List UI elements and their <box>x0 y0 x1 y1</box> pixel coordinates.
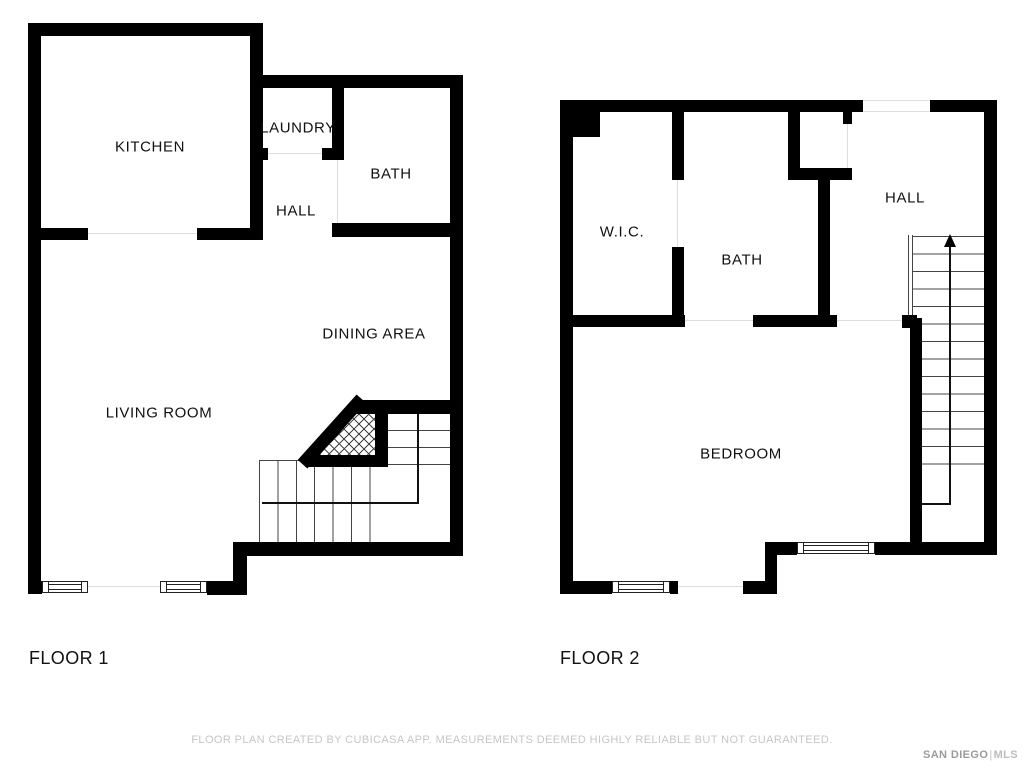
floor-plan-page: KITCHEN LAUNDRY HALL BATH DINING AREA LI… <box>0 0 1024 768</box>
floor2-wall-stairs-bottom-b <box>875 542 997 555</box>
floor1-up-arrow-head-icon <box>412 401 424 414</box>
floor1-window-left <box>42 581 88 593</box>
room-label-hall-f2: HALL <box>885 190 925 207</box>
floor2-wall-right <box>984 100 997 555</box>
floor1-wall-right <box>450 75 463 556</box>
room-label-living: LIVING ROOM <box>106 405 213 422</box>
floor2-wall-closet-left <box>788 112 800 173</box>
floor2-stairs-railing <box>908 235 913 325</box>
floor2-window-bedroom <box>612 581 670 593</box>
floor2-wall-bath-right <box>818 173 830 327</box>
floor1-wall-left <box>28 23 41 594</box>
floor2-wall-left <box>560 100 573 594</box>
floor2-closet-door-opening <box>847 124 848 168</box>
floor1-bath-door-opening <box>337 160 338 223</box>
floor1-wall-bottom-right <box>233 542 463 556</box>
floor1-title: FLOOR 1 <box>29 648 109 669</box>
floor2-wall-middle-a <box>560 315 685 327</box>
floor1-stairs-upper-run <box>388 414 450 465</box>
floor1-wall-annex-top <box>263 75 463 88</box>
floor1-wall-hatch-bottom <box>305 455 388 467</box>
floor1-patio-opening <box>88 586 160 587</box>
floor2-wall-wic-right-top <box>672 112 684 180</box>
floor1-wall-kitchen-bottom-a <box>41 228 88 240</box>
floor1-wall-laundry-stub-left <box>257 148 268 160</box>
floor1-laundry-door-opening <box>268 153 322 154</box>
floor1-wall-laundry-stub-right <box>322 148 344 160</box>
floor2-hall-opening <box>837 320 902 321</box>
room-label-bath-f2: BATH <box>721 252 762 269</box>
room-label-wic: W.I.C. <box>600 224 644 241</box>
floor2-top-window <box>863 100 930 112</box>
floor2-wall-closet-stub <box>843 112 852 124</box>
room-label-hall-f1: HALL <box>276 203 316 220</box>
floor2-wall-stairs-left <box>910 318 922 542</box>
disclaimer-text: FLOOR PLAN CREATED BY CUBICASA APP. MEAS… <box>0 734 1024 746</box>
floor2-up-arrow-head-icon <box>944 234 956 247</box>
room-label-bedroom: BEDROOM <box>700 446 782 463</box>
floor2-wall-top-a <box>560 100 863 112</box>
floor1-window-mid <box>160 581 207 593</box>
room-label-kitchen: KITCHEN <box>115 139 185 156</box>
floor2-bath-door-opening <box>685 320 753 321</box>
floor2-wall-wic-notch <box>573 112 600 137</box>
mls-logo: SAN DIEGO|MLS <box>923 749 1018 761</box>
floor1-wall-bath-bottom <box>332 223 463 237</box>
floor2-up-arrow-shaft <box>949 245 951 505</box>
floor2-bedroom-opening <box>678 586 743 587</box>
floor1-kitchen-door-opening <box>88 233 197 234</box>
floor2-title: FLOOR 2 <box>560 648 640 669</box>
floor1-up-arrow-shaft <box>417 413 419 504</box>
floor2-window-step <box>797 542 875 554</box>
floor1-wall-kitchen-bottom-b <box>197 228 250 240</box>
mls-logo-secondary: MLS <box>994 749 1018 761</box>
mls-logo-primary: SAN DIEGO <box>923 749 988 761</box>
floor2-wic-door-opening <box>677 180 678 247</box>
floor1-wall-stairs-top <box>352 400 463 414</box>
floor1-wall-top <box>28 23 263 36</box>
floor2-wall-middle-b <box>753 315 837 327</box>
floor2-wall-bedroom-bottom-a <box>560 581 612 594</box>
room-label-dining: DINING AREA <box>322 326 425 343</box>
floor1-wall-bottom-left-corner <box>28 581 42 594</box>
floor2-wall-bedroom-bottom-b <box>670 581 678 594</box>
room-label-laundry: LAUNDRY <box>260 120 336 137</box>
room-label-bath-f1: BATH <box>370 166 411 183</box>
floor1-wall-bottom-left <box>207 581 247 595</box>
floor2-wall-bedroom-bottom-c <box>743 581 777 594</box>
floor2-up-arrow-tail <box>922 503 950 505</box>
floor1-up-arrow-tail <box>262 502 419 504</box>
